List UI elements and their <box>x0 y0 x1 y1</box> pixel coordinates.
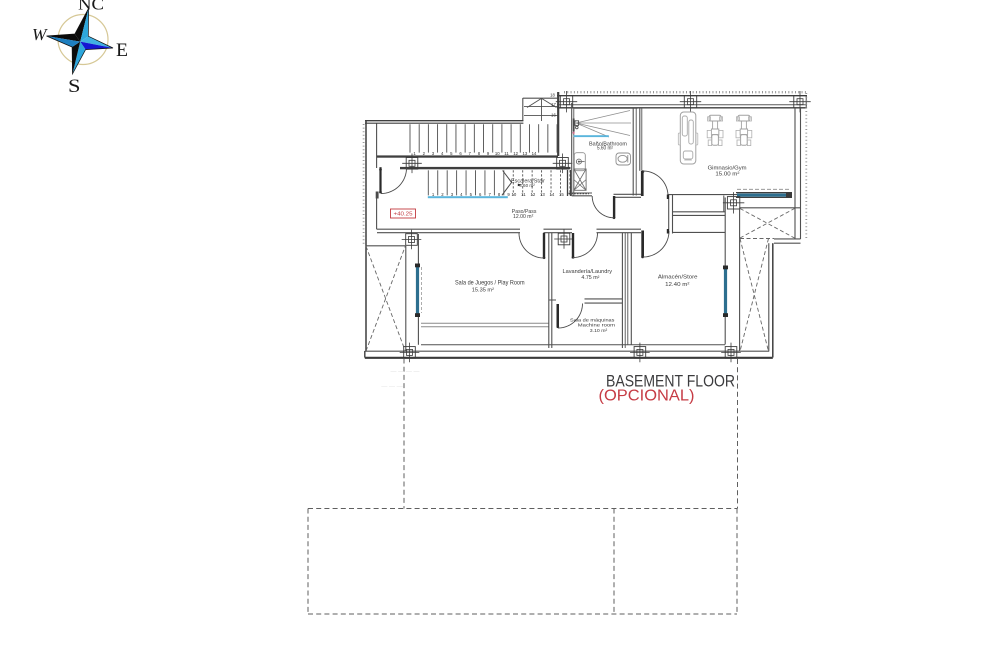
svg-text:Almacén/Store: Almacén/Store <box>658 275 698 281</box>
svg-text:E: E <box>116 40 128 61</box>
svg-text:12.40 m²: 12.40 m² <box>665 282 690 288</box>
svg-text:12.00 m²: 12.00 m² <box>513 214 534 220</box>
svg-text:11: 11 <box>521 192 526 197</box>
svg-text:12: 12 <box>531 192 536 197</box>
svg-text:Sala de Juegos / Play Room: Sala de Juegos / Play Room <box>455 279 525 286</box>
svg-text:18: 18 <box>550 93 555 98</box>
svg-text:4.60 m²: 4.60 m² <box>519 183 535 189</box>
svg-text:— — — —: — — — — <box>390 369 419 375</box>
svg-text:5.60 m²: 5.60 m² <box>597 146 613 152</box>
svg-text:15.35 m²: 15.35 m² <box>472 287 494 293</box>
svg-text:16: 16 <box>551 113 556 118</box>
svg-text:10: 10 <box>512 192 517 197</box>
svg-text:17: 17 <box>551 102 556 107</box>
svg-text:15.00 m²: 15.00 m² <box>715 171 739 177</box>
svg-text:14: 14 <box>550 192 555 197</box>
svg-text:Machine room: Machine room <box>578 323 615 329</box>
svg-text:+40.25: +40.25 <box>394 212 413 218</box>
svg-text:13: 13 <box>540 192 545 197</box>
svg-text:W: W <box>32 25 48 44</box>
svg-text:3.10 m²: 3.10 m² <box>590 328 608 334</box>
svg-text:15: 15 <box>559 192 564 197</box>
svg-text:4.75 m²: 4.75 m² <box>581 275 599 281</box>
svg-text:S: S <box>68 76 81 97</box>
svg-text:(OPCIONAL): (OPCIONAL) <box>599 388 695 405</box>
svg-text:NC: NC <box>78 0 104 14</box>
svg-text:— — —: — — — <box>381 384 402 390</box>
